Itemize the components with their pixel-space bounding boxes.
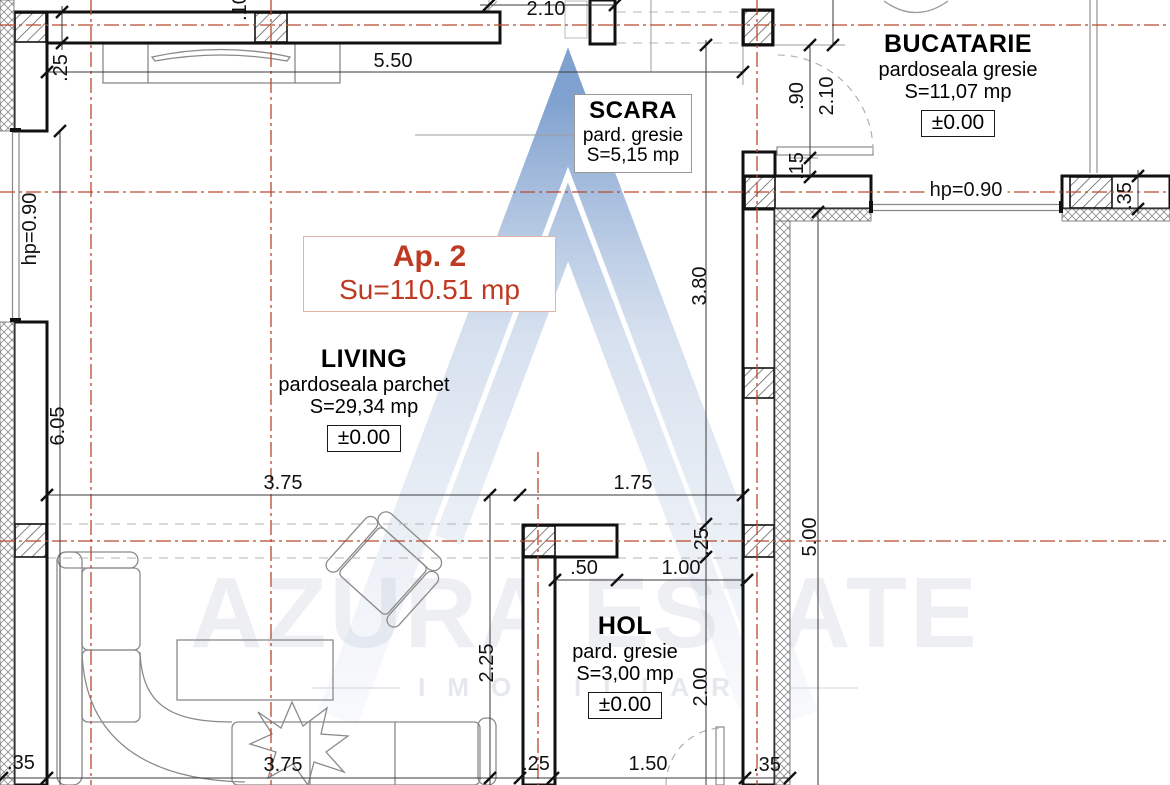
room-name: LIVING — [263, 346, 465, 373]
room-floor: pardoseala gresie — [848, 60, 1068, 82]
room-name: BUCATARIE — [848, 31, 1068, 58]
room-area: S=11,07 mp — [848, 82, 1068, 104]
room-level-badge: ±0.00 — [921, 110, 995, 137]
room-floor: pard. gresie — [545, 642, 705, 664]
room-area: S=29,34 mp — [263, 397, 465, 419]
room-level-badge: ±0.00 — [588, 692, 662, 719]
room-label-bucatarie: BUCATARIE pardoseala gresie S=11,07 mp ±… — [848, 31, 1068, 137]
apartment-name: Ap. 2 — [304, 240, 555, 274]
room-label-hol: HOL pard. gresie S=3,00 mp ±0.00 — [545, 613, 705, 719]
tv-sideboard — [103, 44, 340, 83]
apartment-tag: Ap. 2 Su=110.51 mp — [303, 236, 556, 312]
corner-sofa — [57, 552, 496, 785]
kitchen-door-leaf — [777, 147, 873, 155]
kitchen-sink — [884, 1, 948, 13]
kitchen-counter — [1090, 0, 1097, 173]
room-name: HOL — [545, 613, 705, 640]
room-name: SCARA — [575, 98, 691, 124]
hol-door-swing — [666, 728, 723, 785]
room-label-scara: SCARA pard. gresie S=5,15 mp — [574, 94, 692, 173]
floor-plan: AZURA ESTATE IMOBILIAR — [0, 0, 1170, 785]
room-area: S=5,15 mp — [575, 146, 691, 167]
hol-door-leaf — [716, 727, 724, 785]
coffee-table — [177, 640, 333, 700]
apartment-area: Su=110.51 mp — [304, 274, 555, 305]
room-level-badge: ±0.00 — [327, 425, 401, 452]
room-floor: pard. gresie — [575, 126, 691, 147]
tv-shape — [152, 50, 290, 62]
room-label-living: LIVING pardoseala parchet S=29,34 mp ±0.… — [263, 346, 465, 452]
room-area: S=3,00 mp — [545, 664, 705, 686]
room-floor: pardoseala parchet — [263, 375, 465, 397]
stair-door-leaf — [565, 1, 587, 38]
